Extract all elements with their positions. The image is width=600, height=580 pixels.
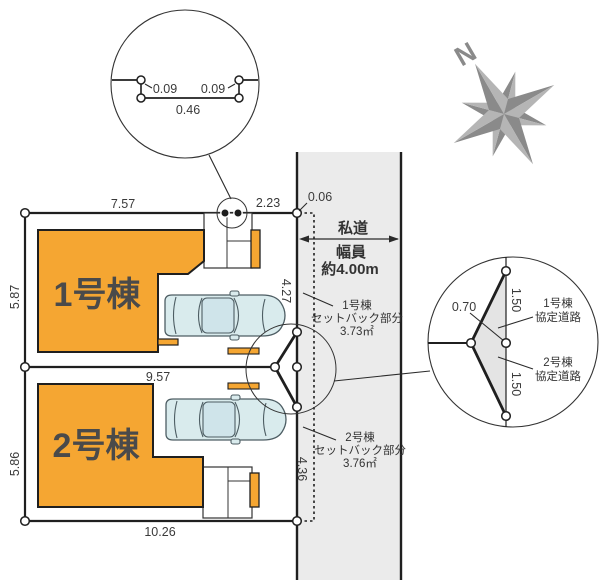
site-plan-page: 私道 幅員 約4.00m 1号棟 2号棟	[0, 0, 600, 580]
private-road: 私道 幅員 約4.00m	[297, 152, 401, 580]
road-name-label: 私道	[337, 219, 368, 237]
dim-lot2-bottom: 10.26	[144, 525, 175, 539]
detail-top-offset-right: 0.09	[201, 82, 225, 96]
car-stopper-1	[228, 348, 259, 354]
road-width-value: 約4.00m	[321, 260, 379, 278]
building-1-entrance-bar	[251, 230, 260, 268]
detail-right-seg-lower: 1.50	[509, 372, 523, 396]
building-2-label: 2号棟	[53, 427, 141, 465]
svg-text:セットバック部分: セットバック部分	[311, 311, 403, 325]
dim-lot1-top: 7.57	[111, 197, 135, 211]
compass-star	[425, 35, 583, 193]
dim-lot2-right: 4.36	[295, 457, 309, 481]
site-plan-drawing: 私道 幅員 約4.00m 1号棟 2号棟	[0, 0, 600, 580]
agreement-road-2-label-1: 2号棟	[543, 355, 573, 369]
dim-lot1-top-right: 2.23	[256, 196, 280, 210]
dim-lot1-right: 4.27	[279, 279, 293, 303]
dim-divider: 9.57	[146, 370, 170, 384]
svg-text:2号棟: 2号棟	[345, 430, 375, 444]
detail-top-offset-left: 0.09	[153, 82, 177, 96]
road-width-label: 幅員	[336, 243, 366, 261]
compass-rose: N	[425, 35, 583, 193]
svg-text:3.73㎡: 3.73㎡	[340, 325, 374, 338]
dim-corner-offset: 0.06	[308, 190, 332, 204]
detail-top-connector	[209, 155, 231, 199]
agreement-road-1-label-2: 協定道路	[535, 310, 581, 324]
car-stopper-2	[228, 383, 259, 389]
car-2	[166, 395, 286, 444]
car-1	[165, 291, 285, 340]
detail-right-seg-upper: 1.50	[509, 288, 523, 312]
road-surface	[297, 152, 401, 580]
building-1-step	[158, 339, 178, 345]
detail-circle-top: 0.09 0.09 0.46	[111, 10, 259, 228]
agreement-road-2-label-2: 協定道路	[535, 369, 581, 383]
agreement-road-1-label-1: 1号棟	[543, 296, 573, 310]
svg-text:1号棟: 1号棟	[342, 298, 372, 312]
building-2-entrance-bar	[250, 473, 259, 507]
svg-text:3.76㎡: 3.76㎡	[343, 457, 377, 470]
dim-lot1-left: 5.87	[8, 285, 22, 309]
dim-lot2-left: 5.86	[8, 452, 22, 476]
detail-top-span: 0.46	[176, 103, 200, 117]
detail-right-offset: 0.70	[452, 300, 476, 314]
svg-text:セットバック部分: セットバック部分	[314, 443, 406, 457]
building-1-label: 1号棟	[54, 276, 142, 314]
